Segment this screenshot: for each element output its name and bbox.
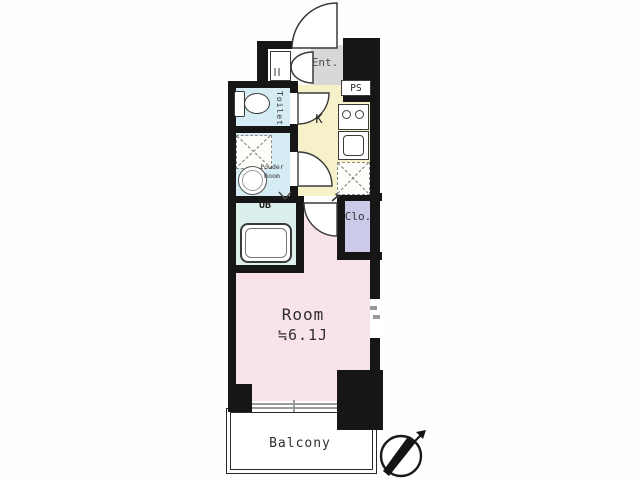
floor-plan: PS Ent. K Toilet Powder Room UB Clo. Roo… — [0, 0, 640, 480]
wall — [296, 203, 304, 265]
balcony-label: Balcony — [250, 436, 350, 451]
unit-bath-label: UB — [247, 200, 283, 211]
powder-room-label: Powder Room — [254, 163, 290, 181]
window-sash-mark — [373, 315, 380, 319]
toilet-bowl — [244, 93, 270, 114]
stove-burner — [342, 110, 351, 119]
powder-door-arc-icon — [298, 152, 332, 186]
wall — [290, 124, 298, 152]
wall-right — [370, 338, 380, 372]
pillar-bottom-left — [228, 384, 252, 412]
room-label: Room — [253, 305, 353, 324]
toilet-label: Toilet — [275, 91, 284, 125]
compass-icon — [374, 428, 432, 480]
room-door-arc-icon — [304, 203, 337, 236]
kitchen-sink-basin — [343, 135, 364, 156]
stove-burner — [355, 110, 364, 119]
closet-floor — [345, 201, 370, 252]
room-area-label: ≒6.1J — [253, 326, 353, 344]
wall — [228, 81, 292, 88]
wall-right — [370, 102, 380, 299]
shoe-cabinet — [270, 51, 291, 81]
wall — [337, 193, 345, 260]
entrance-door-arc-icon — [292, 3, 337, 48]
bathtub-inner — [245, 228, 287, 258]
window-sash-mark — [370, 306, 377, 310]
sliding-door-center-mark — [293, 400, 295, 412]
wall — [228, 265, 304, 273]
shoe-cabinet-mark — [278, 68, 280, 76]
kitchen-label: K — [308, 112, 330, 126]
shoe-cabinet-mark — [274, 68, 276, 76]
entrance-label: Ent. — [305, 56, 345, 69]
refrigerator-space — [337, 162, 370, 195]
closet-label: Clo. — [341, 210, 375, 223]
wall — [228, 126, 290, 133]
pipe-space-box: PS — [341, 80, 371, 96]
room-floor-strip2 — [337, 260, 370, 273]
wall — [257, 41, 268, 85]
pipe-space-label: PS — [342, 82, 370, 95]
pillar-bottom-right — [337, 370, 383, 430]
